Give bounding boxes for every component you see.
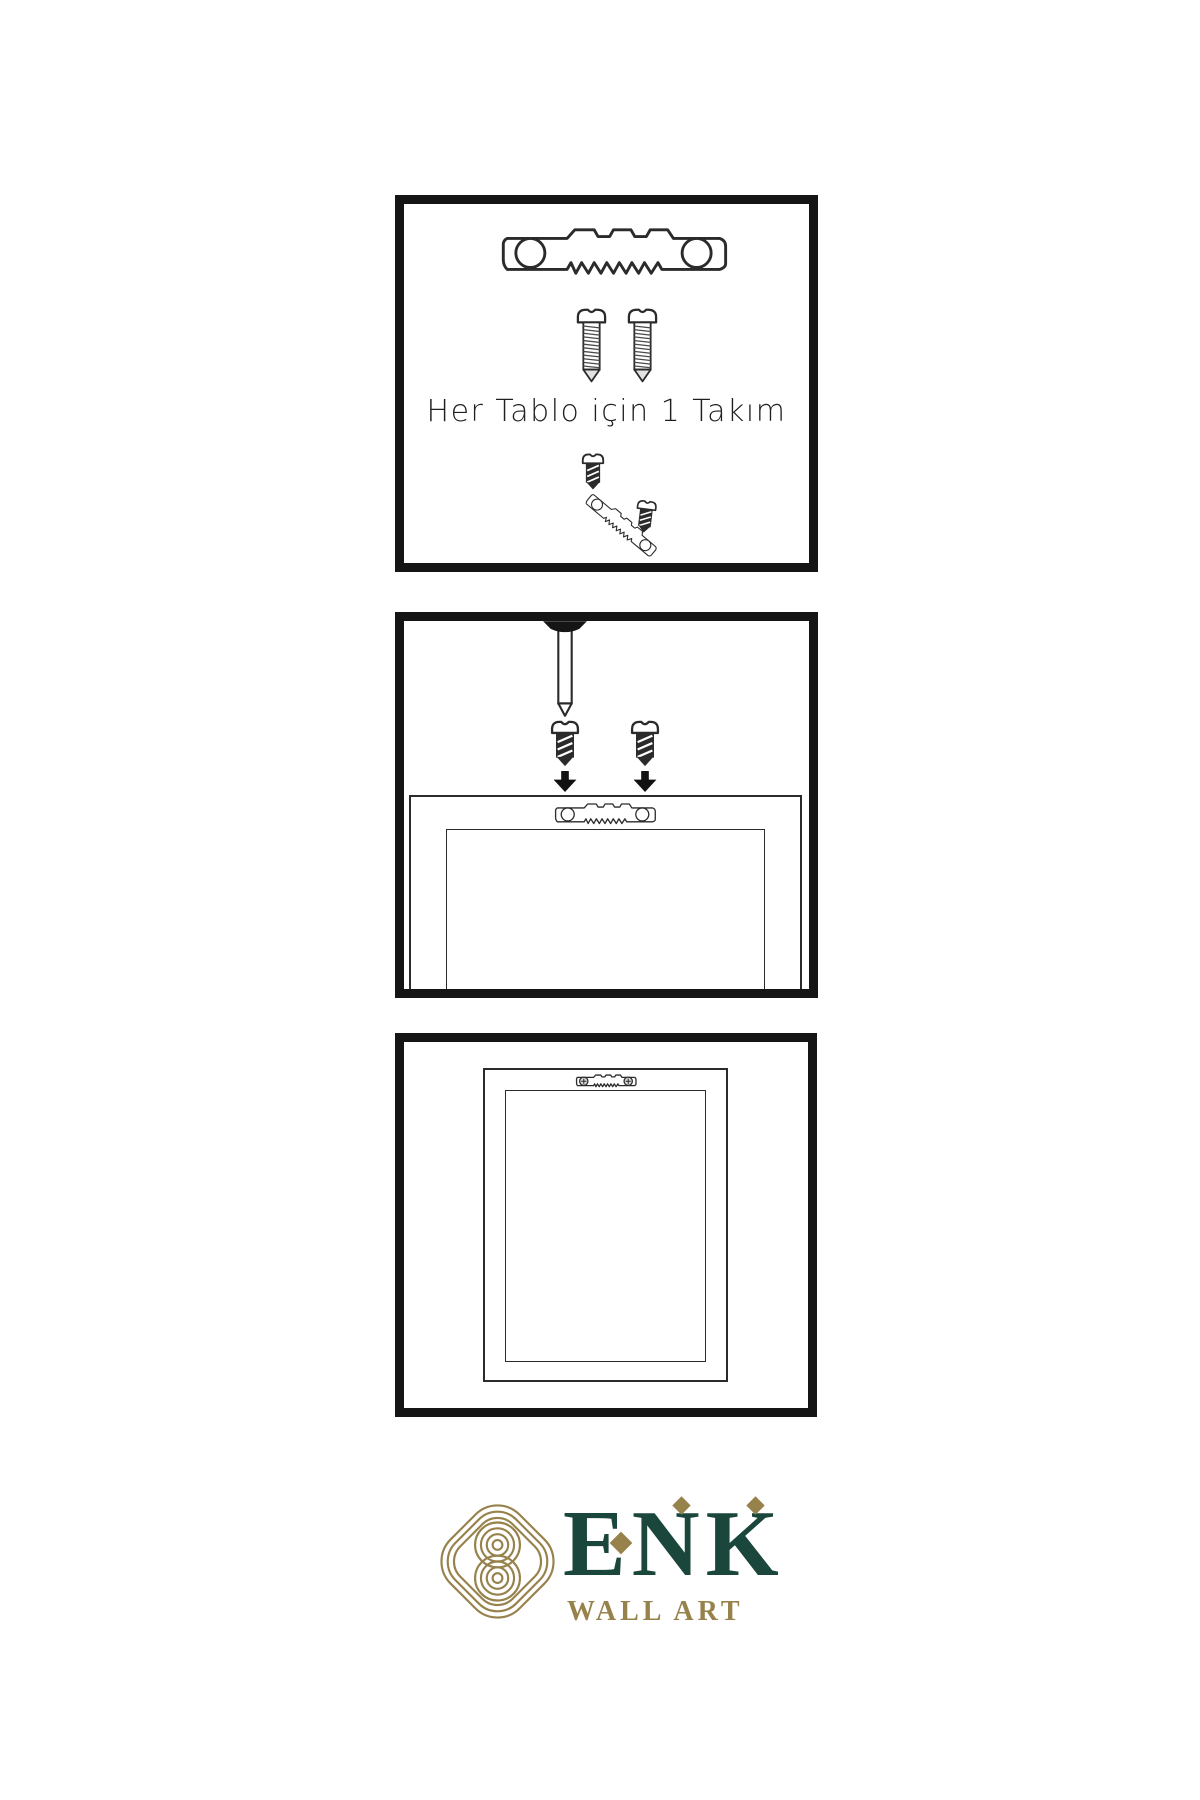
screw-icon	[630, 720, 660, 768]
screw-icon	[633, 499, 658, 535]
brand-text-block: ENK WALL ART	[563, 1497, 823, 1627]
sawtooth-hanger-icon	[497, 223, 730, 281]
screw-icon	[550, 720, 580, 768]
mounted-sawtooth-hanger-icon	[575, 1073, 637, 1089]
hanging-frame-inner	[505, 1090, 706, 1362]
frame-back-inner-outline	[446, 829, 765, 998]
step-1-panel: Her Tablo için 1 Takım	[395, 195, 818, 572]
kit-caption: Her Tablo için 1 Takım	[404, 395, 809, 429]
screw-icon	[626, 307, 659, 385]
brand-tagline: WALL ART	[567, 1596, 744, 1628]
sawtooth-hanger-icon	[553, 801, 657, 827]
step-3-panel	[395, 1033, 817, 1417]
screw-icon	[581, 453, 605, 491]
instruction-sheet: Her Tablo için 1 Takım ENK WALL ART	[0, 0, 1200, 1800]
celtic-knot-icon	[438, 1503, 557, 1620]
step-2-panel	[395, 612, 818, 998]
wall-nail-icon	[543, 620, 587, 718]
screw-icon	[575, 307, 608, 385]
arrow-down-icon	[633, 771, 657, 792]
hanging-frame-outer	[483, 1068, 728, 1382]
arrow-down-icon	[553, 771, 577, 792]
